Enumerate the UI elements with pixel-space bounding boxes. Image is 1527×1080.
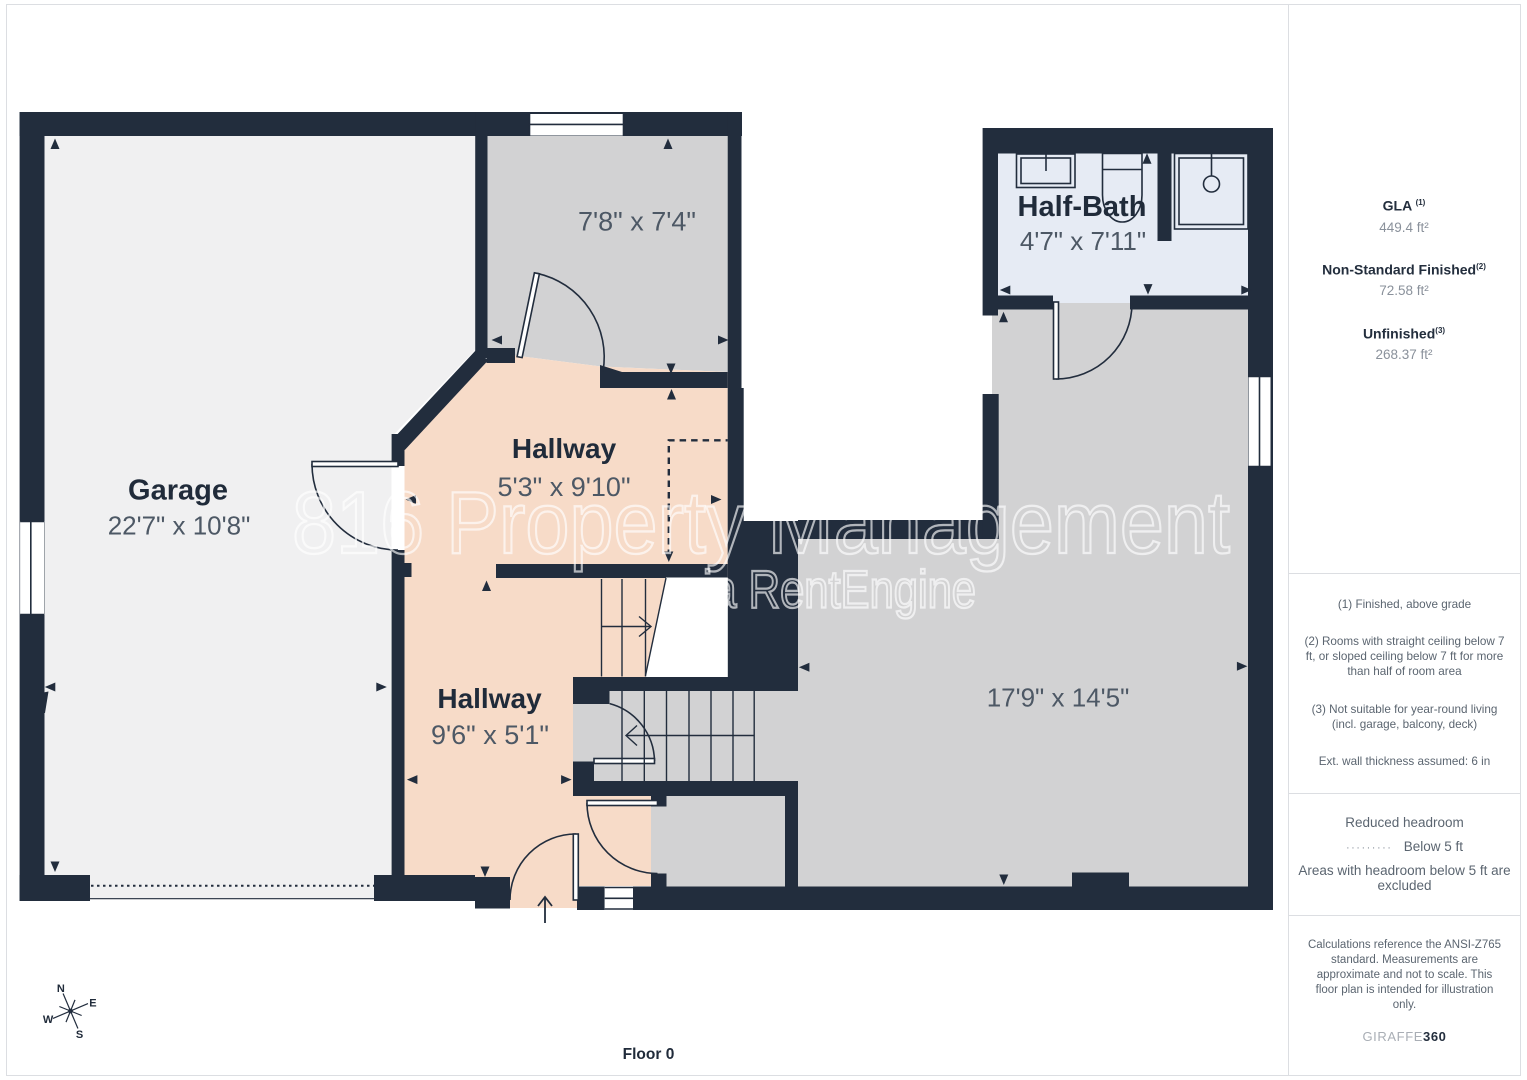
svg-text:Hallway: Hallway — [437, 683, 542, 714]
svg-text:Hallway: Hallway — [512, 433, 617, 464]
svg-text:E: E — [89, 998, 96, 1010]
svg-text:W: W — [43, 1014, 54, 1026]
svg-text:Half-Bath: Half-Bath — [1018, 191, 1147, 223]
svg-text:Floor 0: Floor 0 — [623, 1046, 675, 1063]
svg-text:via RentEngine: via RentEngine — [681, 561, 976, 620]
svg-text:S: S — [76, 1029, 83, 1041]
svg-text:9'6" x 5'1": 9'6" x 5'1" — [431, 720, 549, 750]
svg-text:17'9" x 14'5": 17'9" x 14'5" — [987, 683, 1130, 713]
svg-text:816 Property Management: 816 Property Management — [292, 473, 1230, 572]
svg-text:N: N — [57, 983, 65, 995]
svg-text:22'7" x 10'8": 22'7" x 10'8" — [108, 511, 251, 541]
svg-text:Garage: Garage — [128, 475, 228, 507]
svg-text:7'8" x 7'4": 7'8" x 7'4" — [578, 207, 696, 237]
svg-text:5'3" x 9'10": 5'3" x 9'10" — [497, 472, 630, 502]
svg-text:4'7" x 7'11": 4'7" x 7'11" — [1020, 226, 1146, 256]
